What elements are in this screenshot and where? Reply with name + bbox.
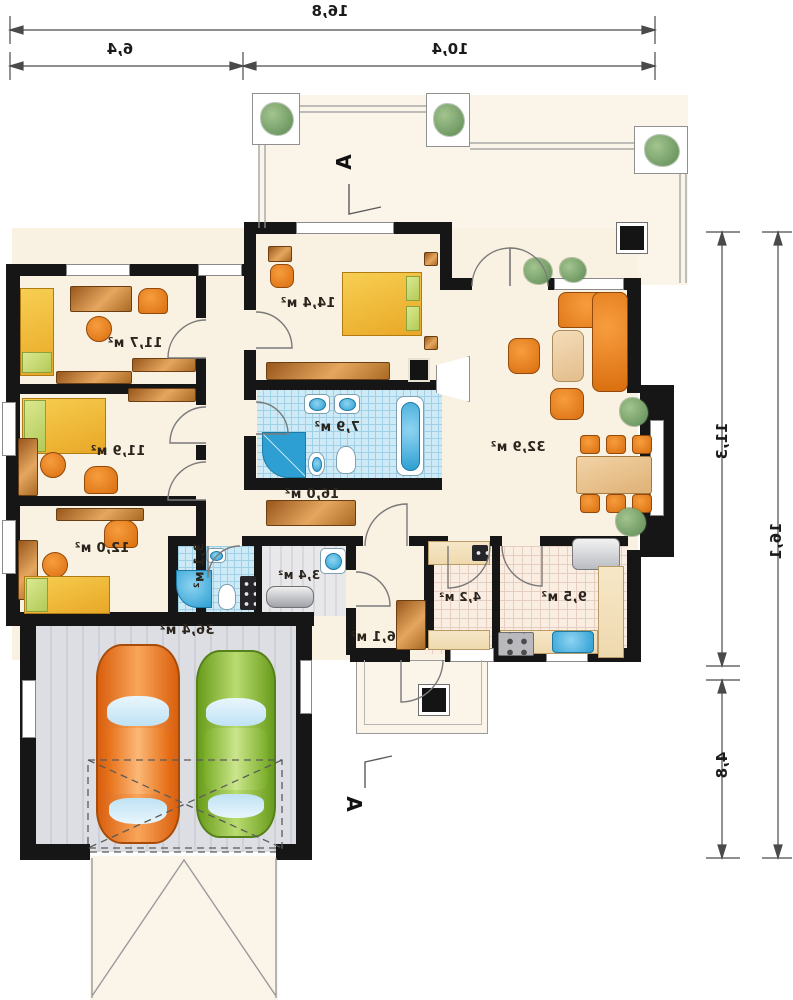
room-area-bedroom3: 12,0 м² <box>62 541 142 556</box>
room-area-bedroom2: 11,9 м² <box>78 444 158 459</box>
room-area-bathroom: 7,9 м² <box>302 420 372 435</box>
dim-top-right: 10,4 <box>400 40 500 58</box>
room-area-entry: 6,1 м² <box>338 630 408 645</box>
room-area-hall: 16,0 м² <box>272 487 352 502</box>
dim-right-upper: 11,3 <box>713 413 731 469</box>
section-lines <box>349 184 392 788</box>
room-area-living: 32,9 м² <box>478 440 558 455</box>
driveway-lines <box>92 858 276 998</box>
dim-top-total: 16,8 <box>270 2 390 20</box>
plan-linework <box>0 0 793 1000</box>
room-area-utility: 3,4 м² <box>264 568 334 582</box>
room-area-kitchen: 9,5 м² <box>532 590 596 605</box>
dim-right-lower: 4,8 <box>713 737 731 793</box>
dim-right-total: 16,1 <box>767 513 785 569</box>
room-area-wc: 3,1 м² <box>193 538 208 594</box>
dimension-lines <box>10 16 792 858</box>
room-area-master: 14,4 м² <box>268 296 348 311</box>
room-area-garage: 36,4 м² <box>142 623 232 638</box>
section-marker-top: A <box>332 144 356 180</box>
floor-plan-canvas: 11,7 м² 11,9 м² 12,0 м² 14,4 м² 7,9 м² 1… <box>0 0 793 1000</box>
section-marker-bottom: A <box>342 786 366 822</box>
dim-top-left: 6,4 <box>70 40 170 58</box>
room-area-pantry: 4,2 м² <box>428 590 492 604</box>
terrace-railings <box>259 106 686 283</box>
room-area-bedroom1: 11,7 м² <box>95 336 175 351</box>
garage-markings <box>88 760 282 852</box>
